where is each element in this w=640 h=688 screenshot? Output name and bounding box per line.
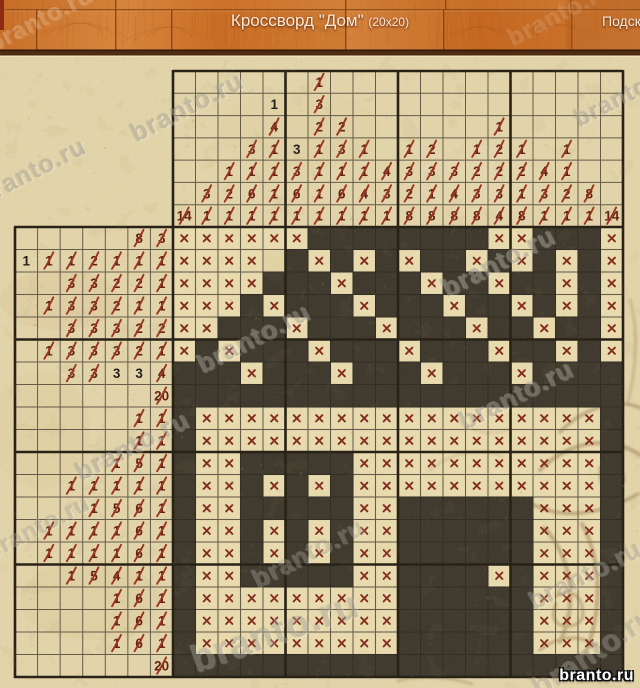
svg-text:Подсказка: Подсказка (602, 13, 640, 29)
